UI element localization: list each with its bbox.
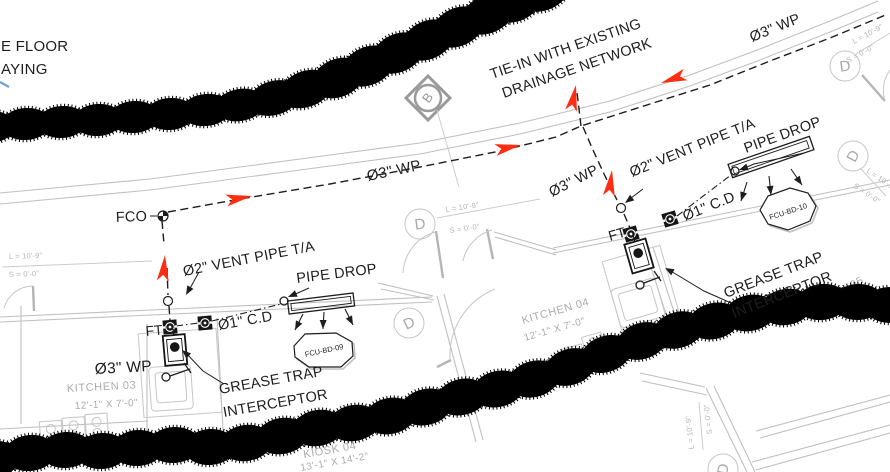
architecture-bottom-right (640, 373, 890, 472)
svg-text:S = 0'-0": S = 0'-0" (845, 43, 876, 65)
door-dims-left-edge: L = 10'-9" S = 0'-0" (9, 251, 43, 279)
flow-arrow (603, 169, 618, 196)
flow-arrow (494, 139, 522, 156)
svg-text:L = 10'-9": L = 10'-9" (9, 251, 43, 261)
label-fco: FCO (116, 209, 148, 226)
label-pipe-drop-left: PIPE DROP (296, 261, 378, 287)
svg-text:D: D (714, 462, 733, 472)
svg-text:S = 0'-0": S = 0'-0" (449, 222, 480, 235)
svg-text:L = 10'-9": L = 10'-9" (445, 200, 480, 214)
floor-drain-left (197, 315, 212, 330)
room-kitchen03-dims: 12'-1" X 7'-0" (75, 398, 139, 412)
fcu-tag-left: FCU-BD-09 (294, 333, 355, 369)
label-wp3-right-branch: Ø3" WP (547, 162, 602, 200)
svg-text:S = 0'-0": S = 0'-0" (9, 269, 40, 279)
svg-text:D: D (401, 313, 418, 333)
note-cutoff-line2: AYING (1, 61, 48, 78)
svg-text:D: D (843, 147, 863, 165)
label-ft-left: FT (145, 322, 164, 339)
svg-text:L = 10'-9": L = 10'-9" (851, 22, 885, 46)
note-cutoff-line1: E FLOOR (1, 38, 68, 55)
floor-plan-drawing: KITCHEN 03 12'-1" X 7'-0" KITCHEN 04 12'… (0, 0, 890, 472)
label-cd-right: Ø1" C.D (681, 189, 738, 224)
vent-riser-right (617, 204, 626, 213)
label-wp3-top-right: Ø3" WP (748, 11, 803, 46)
vent-riser-left (164, 297, 173, 306)
door-tag-mid-right: D L = 10'-9" S = 0'-0" (838, 141, 890, 206)
drawing-canvas: KITCHEN 03 12'-1" X 7'-0" KITCHEN 04 12'… (0, 0, 890, 472)
floor-trap-left (162, 319, 177, 334)
label-cd-left: Ø1" C.D (217, 309, 274, 334)
label-ft-right: FT (606, 224, 627, 244)
label-wp3-kitchen03: Ø3" WP (94, 358, 152, 378)
door-tag-center: D L = 10'-9" S = 0'-0" (405, 199, 540, 239)
pipe-drop-diffuser-left (288, 293, 357, 332)
blue-reference-mark (0, 82, 9, 87)
door-tag-top-right: D L = 10'-9" S = 0'-0" (830, 22, 890, 81)
label-vent-right: Ø2" VENT PIPE T/A (628, 116, 758, 181)
svg-text:D: D (414, 215, 427, 233)
door-tag-bottom-center: D (394, 308, 424, 338)
leader-lines (180, 153, 804, 384)
cleanout-fco-symbol (150, 211, 168, 221)
flow-arrow (157, 254, 171, 281)
flow-arrow (659, 69, 687, 89)
double-door-center (403, 229, 556, 278)
fcu-tag-right: FCU-BD-10 (760, 188, 818, 232)
svg-text:L = 10'-9": L = 10'-9" (684, 415, 696, 449)
room-kitchen03-name: KITCHEN 03 (67, 379, 137, 395)
svg-text:S = 0'-0": S = 0'-0" (702, 404, 714, 435)
flow-arrow (225, 190, 253, 206)
label-wp3-main: Ø3" WP (365, 157, 422, 185)
